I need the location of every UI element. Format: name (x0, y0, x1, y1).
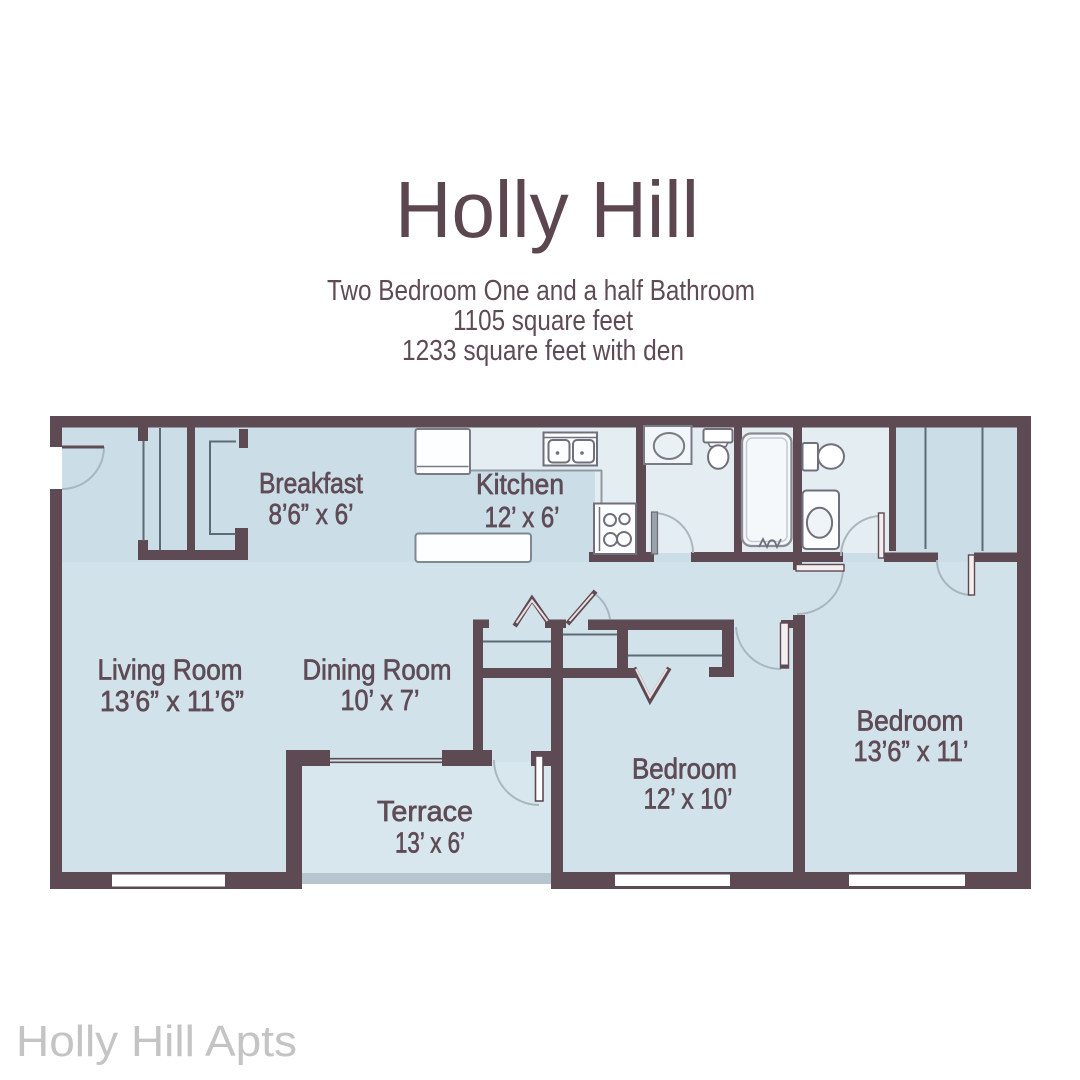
svg-text:Breakfast: Breakfast (259, 468, 363, 500)
svg-text:Bedroom: Bedroom (857, 706, 964, 738)
svg-text:1105 square feet: 1105 square feet (453, 305, 633, 337)
svg-text:Bedroom: Bedroom (632, 754, 737, 786)
svg-text:Terrace: Terrace (377, 796, 473, 828)
svg-text:Kitchen: Kitchen (476, 469, 564, 501)
svg-text:12’ x 10’: 12’ x 10’ (644, 784, 733, 816)
svg-text:Holly Hill: Holly Hill (395, 165, 699, 254)
svg-text:1233 square feet with den: 1233 square feet with den (402, 335, 684, 367)
svg-text:Holly Hill Apts: Holly Hill Apts (16, 1017, 297, 1066)
svg-text:13’6” x 11’: 13’6” x 11’ (854, 736, 969, 768)
svg-text:12’ x 6’: 12’ x 6’ (485, 502, 560, 534)
svg-text:Dining Room: Dining Room (303, 655, 452, 687)
svg-text:Two Bedroom One and a half Bat: Two Bedroom One and a half Bathroom (327, 275, 755, 307)
svg-text:8’6” x 6’: 8’6” x 6’ (269, 499, 354, 531)
svg-text:13’ x 6’: 13’ x 6’ (395, 828, 465, 860)
svg-text:13’6” x 11’6”: 13’6” x 11’6” (100, 686, 244, 718)
svg-text:Living Room: Living Room (98, 655, 243, 687)
svg-text:10’ x 7’: 10’ x 7’ (341, 685, 420, 717)
